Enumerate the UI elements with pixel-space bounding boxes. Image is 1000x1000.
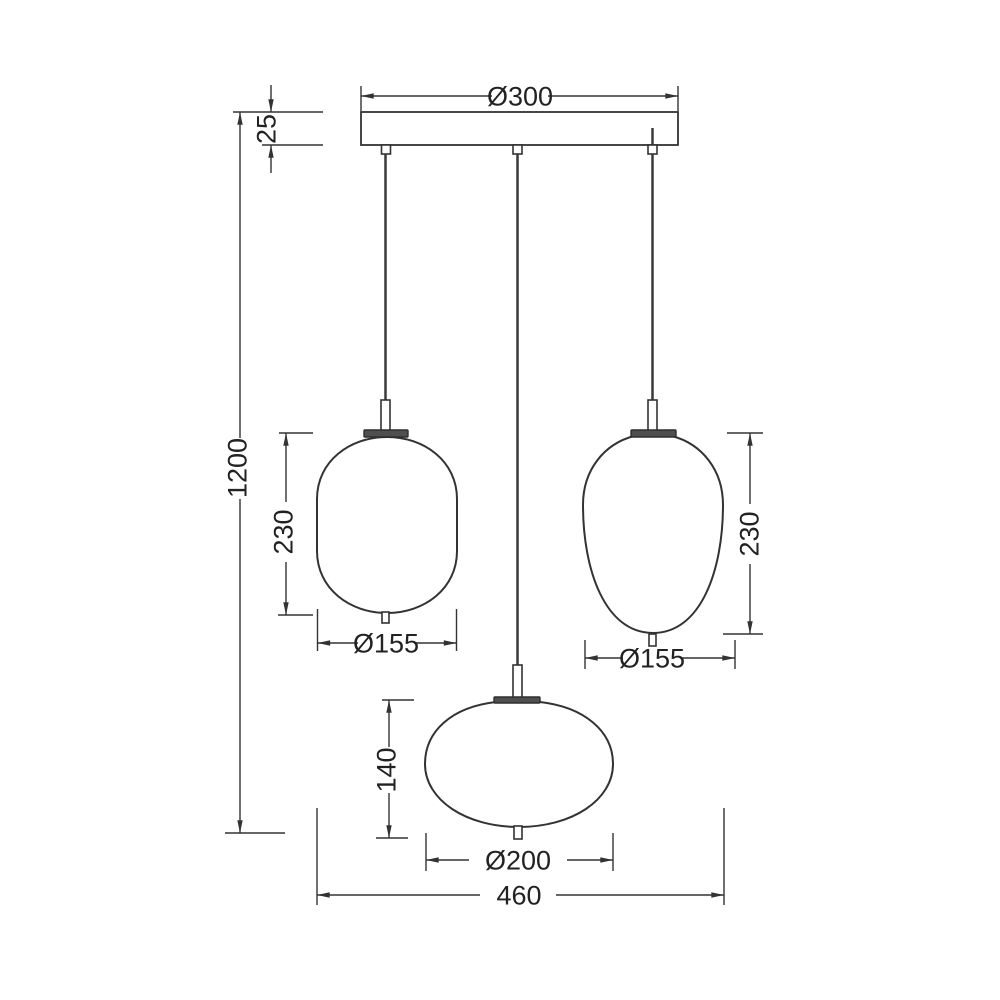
cord-connector-middle [513,145,522,154]
bottom-shade-nipple [514,826,522,839]
left-shade-nipple [382,612,389,623]
left-shade-body [317,437,457,613]
dim-bottom-shade-height: 140 [371,700,414,838]
right-shade-socket [648,400,657,431]
canopy-plate [361,112,678,145]
dim-left-shade-height: 230 [268,433,313,615]
bottom-shade-socket [513,665,522,698]
dim-label-bottom-shade-diameter: Ø200 [485,845,551,875]
dim-label-canopy-height: 25 [251,114,281,144]
dim-label-canopy-diameter: Ø300 [487,81,553,111]
canopy-group [361,112,678,154]
dim-right-shade-height: 230 [723,433,764,634]
cord-connector-left [382,145,391,154]
right-shade-body [583,436,723,633]
right-shade-cap [631,430,676,437]
dim-canopy-diameter: Ø300 [361,81,678,111]
bottom-shade-body [425,702,613,827]
dim-overall-drop: 1200 [222,112,285,833]
pendant-lamp-drawing: Ø300 25 1200 230 Ø155 230 [0,0,1000,1000]
dim-label-right-shade-diameter: Ø155 [619,643,685,673]
dim-canopy-height: 25 [233,85,323,173]
dim-label-left-shade-height: 230 [268,509,298,554]
dim-label-overall-width: 460 [496,880,541,910]
dim-label-bottom-shade-height: 140 [371,747,401,792]
cord-connector-right [648,145,657,154]
bottom-shade-group [425,665,613,839]
dim-right-shade-diameter: Ø155 [585,640,735,673]
dim-label-right-shade-height: 230 [734,511,764,556]
left-shade-socket [381,400,390,431]
dimension-drawing-canvas: Ø300 25 1200 230 Ø155 230 [0,0,1000,1000]
right-shade-group [583,400,723,646]
bottom-shade-cap [494,697,540,703]
dim-label-left-shade-diameter: Ø155 [353,628,419,658]
left-shade-group [317,400,457,623]
cords-group [386,154,653,665]
left-shade-cap [364,430,408,437]
dim-label-overall-drop: 1200 [222,438,252,498]
